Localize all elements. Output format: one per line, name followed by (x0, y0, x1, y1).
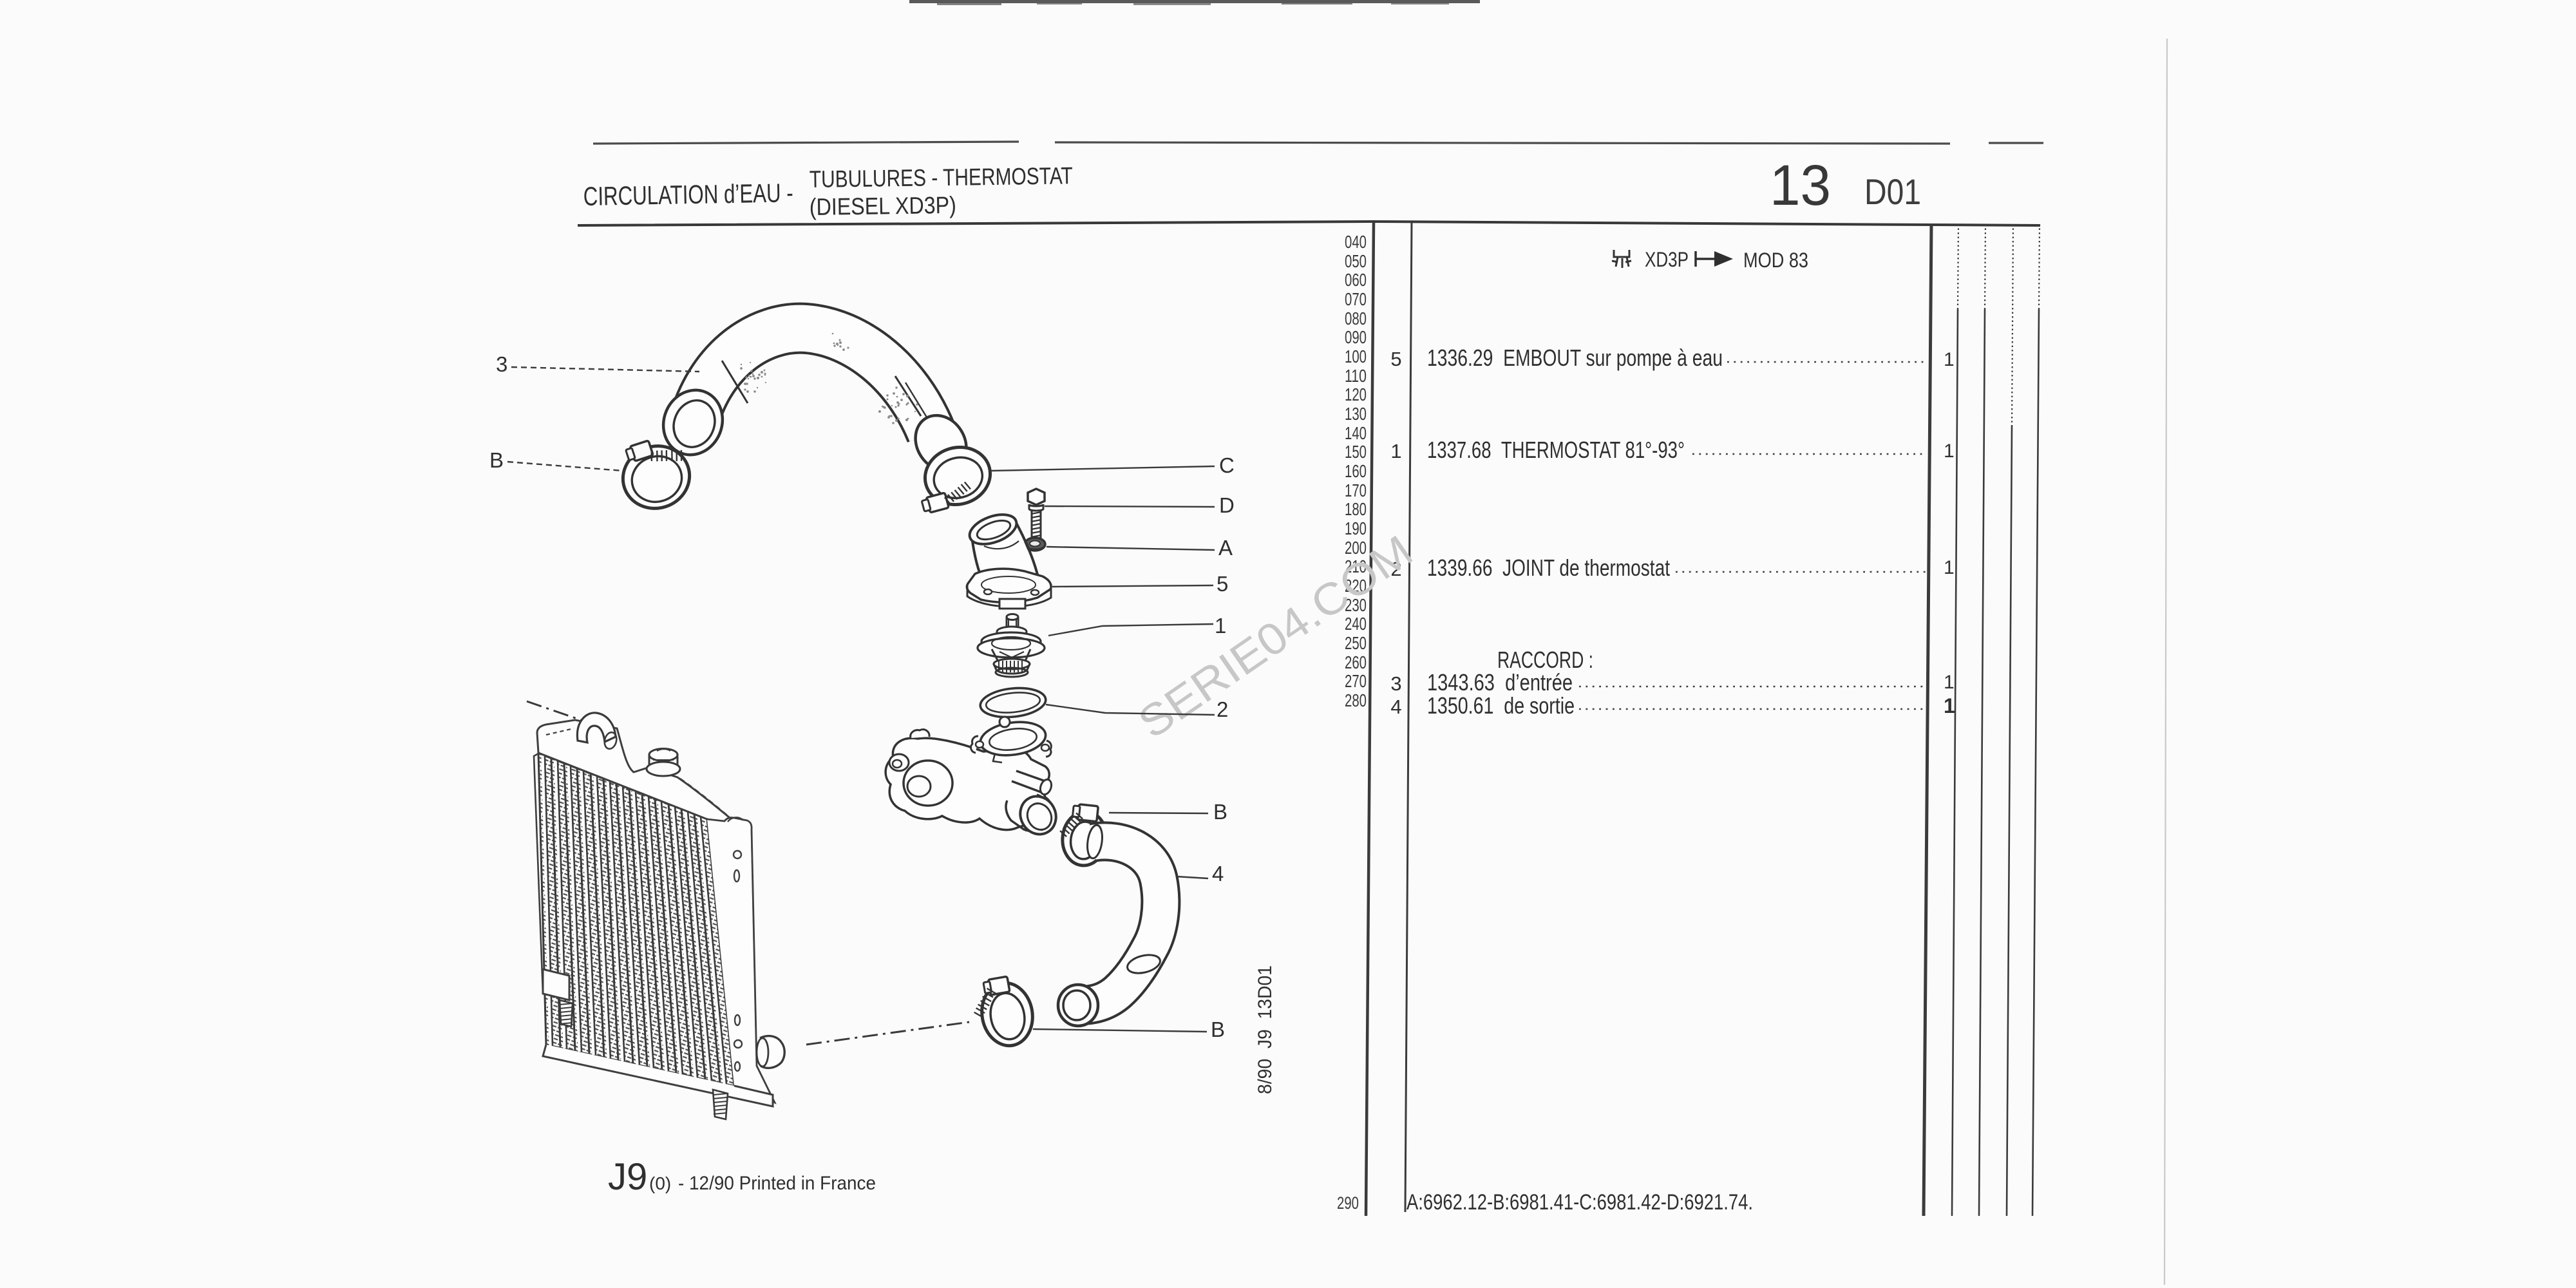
svg-text:13: 13 (1770, 153, 1831, 217)
svg-text:1350.61 de sortie: 1350.61 de sortie (1427, 692, 1575, 719)
svg-text:130: 130 (1345, 404, 1367, 424)
svg-text:XD3P: XD3P (1645, 248, 1689, 271)
svg-text:(DIESEL XD3P): (DIESEL XD3P) (810, 192, 957, 220)
svg-text:290: 290 (1337, 1193, 1359, 1213)
svg-text:140: 140 (1345, 423, 1367, 443)
svg-text:4: 4 (1390, 696, 1401, 718)
svg-text:080: 080 (1345, 308, 1367, 328)
svg-text:1337.68 THERMOSTAT 81°-93°: 1337.68 THERMOSTAT 81°-93° (1427, 437, 1685, 463)
svg-text:170: 170 (1345, 480, 1367, 500)
svg-text:A: A (1218, 536, 1233, 560)
svg-text:040: 040 (1345, 232, 1367, 252)
svg-text:5: 5 (1217, 572, 1228, 596)
svg-text:MOD 83: MOD 83 (1743, 249, 1808, 272)
svg-text:150: 150 (1345, 442, 1367, 462)
svg-text:C: C (1219, 453, 1235, 477)
svg-text:(0): (0) (649, 1173, 671, 1193)
svg-text:090: 090 (1345, 327, 1367, 347)
svg-text:B: B (1213, 800, 1227, 824)
svg-text:250: 250 (1345, 633, 1367, 653)
svg-text:1: 1 (1215, 614, 1226, 638)
svg-text:1: 1 (1944, 694, 1955, 717)
svg-text:B: B (1211, 1018, 1225, 1041)
svg-text:3: 3 (1390, 672, 1401, 695)
svg-text:270: 270 (1345, 671, 1367, 691)
svg-text:160: 160 (1345, 461, 1367, 481)
svg-text:J9: J9 (608, 1156, 647, 1198)
svg-text:180: 180 (1345, 499, 1367, 519)
svg-text:1343.63 d’entrée: 1343.63 d’entrée (1427, 669, 1573, 696)
svg-text:280: 280 (1345, 690, 1367, 710)
svg-text:100: 100 (1345, 346, 1367, 366)
svg-text:TUBULURES - THERMOSTAT: TUBULURES - THERMOSTAT (810, 162, 1074, 193)
svg-text:1: 1 (1944, 349, 1955, 370)
svg-text:8/90 J9 13D01: 8/90 J9 13D01 (1255, 965, 1276, 1094)
svg-text:050: 050 (1345, 251, 1367, 271)
svg-text:3: 3 (496, 352, 507, 376)
svg-text:D01: D01 (1864, 171, 1921, 212)
svg-text:1: 1 (1944, 672, 1955, 693)
svg-text:120: 120 (1345, 384, 1367, 404)
svg-text:190: 190 (1345, 518, 1367, 538)
svg-text:1336.29 EMBOUT sur pompe à ea: 1336.29 EMBOUT sur pompe à eau (1427, 345, 1723, 371)
svg-text:- 12/90 Printed in France: - 12/90 Printed in France (678, 1173, 876, 1194)
svg-text:060: 060 (1345, 270, 1367, 290)
svg-text:1: 1 (1390, 440, 1401, 462)
svg-text:2: 2 (1217, 697, 1228, 721)
svg-text:070: 070 (1345, 289, 1367, 309)
svg-text:4: 4 (1212, 862, 1224, 885)
svg-text:D: D (1219, 493, 1235, 517)
svg-text:A:6962.12-B:6981.41-C:6981.42-: A:6962.12-B:6981.41-C:6981.42-D:6921.74. (1406, 1190, 1753, 1215)
svg-text:110: 110 (1345, 366, 1367, 386)
svg-text:1339.66 JOINT de thermostat: 1339.66 JOINT de thermostat (1427, 554, 1670, 581)
svg-text:B: B (489, 448, 504, 472)
svg-text:260: 260 (1345, 652, 1367, 672)
svg-text:1: 1 (1944, 440, 1955, 462)
svg-text:CIRCULATION d’EAU -: CIRCULATION d’EAU - (583, 178, 793, 211)
svg-text:1: 1 (1944, 557, 1955, 578)
svg-text:5: 5 (1390, 348, 1401, 370)
